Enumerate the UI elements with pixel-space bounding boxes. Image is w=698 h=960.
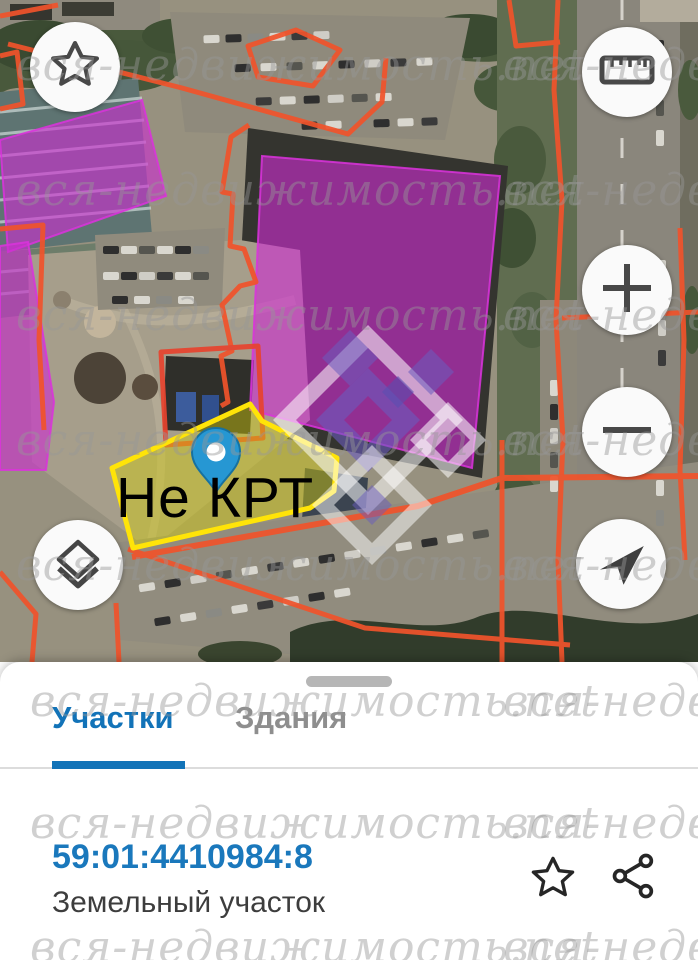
tab-parcels[interactable]: Участки <box>52 702 174 733</box>
layers-button[interactable] <box>33 520 123 610</box>
plus-icon <box>598 259 656 322</box>
parcel-type-label: Земельный участок <box>52 886 325 920</box>
share-icon <box>608 850 660 907</box>
ruler-icon <box>598 49 656 96</box>
parcel-status-label: Не КРТ <box>116 465 314 531</box>
zoom-in-button[interactable] <box>582 245 672 335</box>
tab-buildings[interactable]: Здания <box>235 702 347 733</box>
cadastral-number-link[interactable]: 59:01:4410984:8 <box>52 838 313 877</box>
layers-icon <box>49 534 107 597</box>
drag-handle[interactable] <box>306 676 392 687</box>
locate-button[interactable] <box>576 519 666 609</box>
active-tab-underline <box>52 761 185 769</box>
measure-button[interactable] <box>582 27 672 117</box>
bottom-sheet: Участки Здания 59:01:4410984:8 Земельный… <box>0 662 698 960</box>
favorite-map-button[interactable] <box>30 22 120 112</box>
navigation-arrow-icon <box>594 535 648 594</box>
favorite-parcel-button[interactable] <box>527 854 579 906</box>
zoom-out-button[interactable] <box>582 387 672 477</box>
minus-icon <box>598 401 656 464</box>
star-icon <box>528 853 578 908</box>
app-screen: Не КРТ <box>0 0 698 960</box>
star-icon <box>47 37 103 98</box>
share-button[interactable] <box>608 852 660 904</box>
